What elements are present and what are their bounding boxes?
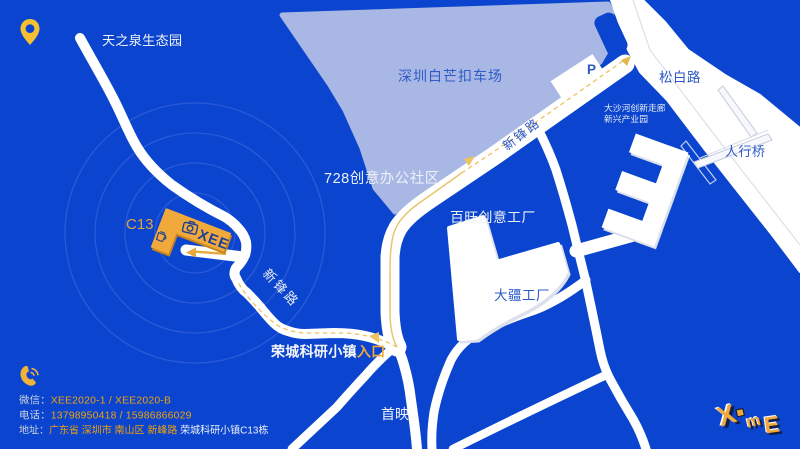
svg-text:大沙河创新走廊: 大沙河创新走廊 <box>604 102 666 113</box>
svg-text:首映: 首映 <box>381 406 409 422</box>
svg-text:松白路: 松白路 <box>659 70 701 85</box>
svg-text:天之泉生态园: 天之泉生态园 <box>102 32 182 48</box>
svg-text:地址：广东省 深圳市 南山区 新峰路 荣城科研小镇C13栋: 地址：广东省 深圳市 南山区 新峰路 荣城科研小镇C13栋 <box>19 424 268 437</box>
svg-text:728创意办公社区: 728创意办公社区 <box>324 169 440 187</box>
svg-text:电话：13798950418 / 15986866029: 电话：13798950418 / 15986866029 <box>19 409 192 422</box>
svg-text:新兴产业园: 新兴产业园 <box>604 113 648 124</box>
svg-text:荣城科研小镇入口: 荣城科研小镇入口 <box>270 344 385 360</box>
svg-text:深圳白芒扣车场: 深圳白芒扣车场 <box>398 68 503 84</box>
svg-text:P: P <box>587 62 596 77</box>
svg-text:微信：XEE2020-1 / XEE2020-B: 微信：XEE2020-1 / XEE2020-B <box>19 394 171 407</box>
svg-text:大疆工厂: 大疆工厂 <box>494 288 550 303</box>
svg-text:C13: C13 <box>126 216 154 233</box>
svg-text:人行桥: 人行桥 <box>725 144 766 159</box>
svg-text:百旺创意工厂: 百旺创意工厂 <box>450 209 536 225</box>
